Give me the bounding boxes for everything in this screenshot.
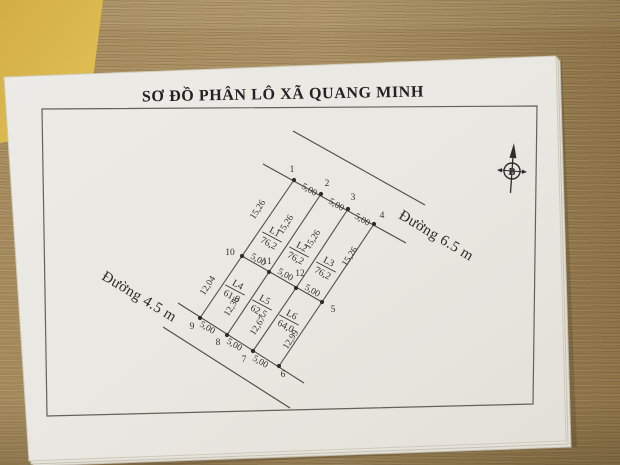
point-number-10: 10: [225, 248, 235, 258]
survey-point-1: [292, 178, 296, 182]
point-number-12: 12: [295, 269, 305, 279]
survey-point-3: [346, 207, 350, 211]
survey-point-11: [267, 270, 271, 274]
point-number-6: 6: [281, 370, 286, 380]
survey-point-6: [277, 364, 281, 368]
point-number-7: 7: [242, 355, 247, 365]
survey-point-10: [240, 254, 244, 258]
point-number-5: 5: [331, 305, 336, 315]
survey-point-2: [319, 192, 323, 196]
survey-point-5: [320, 300, 324, 304]
point-number-1: 1: [290, 165, 295, 175]
photo-canvas: SƠ ĐỒ PHÂN LÔ XÃ QUANG MINH Đường 6.5 m …: [0, 0, 620, 465]
point-number-8: 8: [216, 338, 221, 348]
north-letter: B: [508, 167, 516, 178]
survey-point-9: [198, 316, 202, 320]
survey-point-12: [294, 286, 298, 290]
point-number-2: 2: [325, 179, 330, 189]
desk-scene: SƠ ĐỒ PHÂN LÔ XÃ QUANG MINH Đường 6.5 m …: [0, 0, 620, 465]
survey-point-8: [225, 333, 229, 337]
point-number-3: 3: [351, 193, 356, 203]
point-number-9: 9: [190, 322, 195, 332]
survey-point-7: [251, 349, 255, 353]
survey-point-4: [372, 222, 376, 226]
point-number-4: 4: [380, 211, 385, 221]
